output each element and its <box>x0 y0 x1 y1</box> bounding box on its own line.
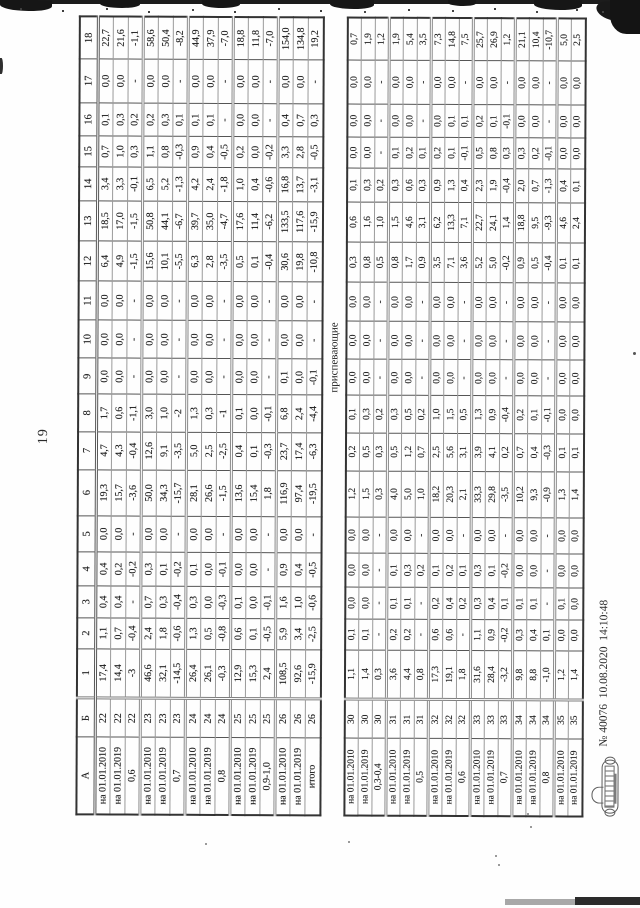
data-cell: - <box>262 321 277 359</box>
data-cell: 0,0 <box>569 518 583 554</box>
data-cell: 0,2 <box>514 396 528 433</box>
data-cell: 0,0 <box>291 517 306 553</box>
column-header-cell: 5 <box>78 516 97 552</box>
data-cell: 3,4 <box>291 619 306 650</box>
data-cell: 0,0 <box>201 586 216 618</box>
data-cell: - <box>374 321 388 359</box>
data-cell: 0,4 <box>248 168 263 202</box>
data-cell: 14,8 <box>445 18 459 60</box>
data-cell: 92,6 <box>290 650 305 699</box>
data-cell: 2,8 <box>293 137 308 168</box>
data-cell: -0,2 <box>500 243 514 283</box>
data-cell: 1,1 <box>344 650 358 699</box>
scan-dot <box>633 352 636 355</box>
data-cell: 0,9 <box>431 168 445 202</box>
data-cell: 3,1 <box>457 433 471 471</box>
data-cell: 0,2 <box>375 168 389 202</box>
data-cell: 23 <box>140 698 155 737</box>
data-cell: 0,5 <box>359 433 373 471</box>
data-cell: 0,7 <box>529 169 543 203</box>
data-cell: 0,0 <box>486 322 500 360</box>
data-cell: 6,2 <box>430 202 444 242</box>
scan-dot <box>205 843 207 845</box>
data-cell: 0,0 <box>471 518 485 554</box>
data-cell: 0,3 <box>156 586 171 618</box>
data-cell: 1,5 <box>359 471 373 517</box>
data-cell: 0,1 <box>246 432 261 470</box>
data-cell: 0,6 <box>231 618 246 649</box>
data-cell: -6,3 <box>306 432 321 470</box>
data-cell: 0,9 <box>276 553 291 587</box>
data-cell: -0,6 <box>306 587 321 619</box>
data-cell: -0,4 <box>501 169 515 203</box>
data-cell: 4,0 <box>387 471 401 517</box>
row-label-cell: 0,9-1,0 <box>260 738 275 815</box>
data-cell: - <box>374 360 388 396</box>
data-cell: 0,0 <box>513 518 527 554</box>
data-cell: 26,4 <box>185 649 200 698</box>
data-cell: 0,5 <box>201 618 216 649</box>
data-cell: - <box>217 321 232 359</box>
data-cell: 134,8 <box>293 17 308 59</box>
data-cell: 26,9 <box>487 18 501 60</box>
data-cell: 0,2 <box>431 137 445 168</box>
data-cell: 1,0 <box>113 136 128 167</box>
data-cell: 0,3 <box>389 168 403 202</box>
data-cell: 0,0 <box>231 516 246 552</box>
data-cell: 0,0 <box>143 59 158 103</box>
data-cell: 46,6 <box>140 649 155 698</box>
data-cell: 1,4 <box>568 651 582 700</box>
data-cell: 0,0 <box>555 554 569 588</box>
data-cell: 0,8 <box>487 138 501 169</box>
data-cell: 0,2 <box>387 619 401 650</box>
data-cell: -0,5 <box>308 137 323 168</box>
data-cell: 0,1 <box>571 169 585 203</box>
data-cell: - <box>262 359 277 395</box>
data-cell: 0,0 <box>141 516 156 552</box>
data-cell: 30 <box>372 699 386 738</box>
data-cell: 0,1 <box>457 553 471 587</box>
data-cell: 17,3 <box>428 650 442 699</box>
data-cell: 50,4 <box>158 17 173 59</box>
data-cell: 3,1 <box>416 202 430 242</box>
data-cell: - <box>375 137 389 168</box>
scan-corner-smudge <box>610 0 640 34</box>
data-cell: -2 <box>172 395 187 432</box>
data-cell: 1,7 <box>402 242 416 282</box>
data-cell: 0,0 <box>360 282 374 321</box>
data-cell: 0,3 <box>202 395 217 432</box>
data-cell: 0,3 <box>373 433 387 471</box>
data-cell: 0,0 <box>444 283 458 322</box>
data-cell: 0,1 <box>417 137 431 168</box>
data-cell: -6,7 <box>172 201 187 241</box>
data-cell: - <box>541 588 555 620</box>
data-cell: 0,7 <box>98 136 113 167</box>
data-cell: 0,0 <box>201 552 216 586</box>
row-label-cell: на 01.01.2019 <box>200 738 215 815</box>
data-cell: 0,4 <box>203 136 218 167</box>
data-cell: 0,0 <box>247 321 262 359</box>
data-cell: 0,0 <box>388 360 402 396</box>
data-cell: 2,8 <box>202 241 217 281</box>
data-cell: - <box>373 517 387 553</box>
data-cell: 44,9 <box>188 17 203 59</box>
data-cell: 0,0 <box>569 554 583 588</box>
data-cell: 0,0 <box>202 321 217 359</box>
data-cell: 0,0 <box>556 396 570 433</box>
data-cell: -0,2 <box>171 552 186 586</box>
data-cell: 1,3 <box>445 168 459 202</box>
data-cell: 0,3 <box>361 168 375 202</box>
data-cell: -3,1 <box>308 168 323 202</box>
data-cell: -1,3 <box>543 169 557 203</box>
data-cell: 0,0 <box>445 60 459 104</box>
data-cell: 0,0 <box>232 282 247 321</box>
data-cell: 0,0 <box>569 588 583 620</box>
data-cell: 0,0 <box>401 517 415 553</box>
data-cell: 1,2 <box>554 651 568 700</box>
data-cell: 32 <box>428 700 442 739</box>
data-cell: 0,0 <box>96 516 111 552</box>
data-cell: 24,1 <box>486 203 500 243</box>
data-cell: -2,5 <box>216 432 231 470</box>
data-cell: 0,0 <box>360 321 374 359</box>
data-cell: 37,9 <box>203 17 218 59</box>
data-cell: 133,5 <box>277 202 292 242</box>
data-cell: 0,0 <box>571 61 585 105</box>
row-label-cell: на 01.01.2010 <box>95 737 110 814</box>
data-cell: -1,1 <box>128 17 143 59</box>
data-cell: 116,9 <box>276 470 291 516</box>
data-cell: 0,4 <box>527 433 541 471</box>
data-cell: 0,0 <box>402 282 416 321</box>
data-cell: 0,2 <box>233 137 248 168</box>
data-cell: 0,1 <box>186 552 201 586</box>
data-cell: - <box>217 359 232 395</box>
data-cell: 0,4 <box>291 553 306 587</box>
data-cell: 0,0 <box>232 321 247 359</box>
data-cell: -10,8 <box>307 242 322 282</box>
data-cell: - <box>458 360 472 396</box>
data-cell: 0,0 <box>248 59 263 103</box>
data-cell: 6,5 <box>143 167 158 201</box>
data-cell: 11,8 <box>248 17 263 59</box>
data-cell: 15,4 <box>246 470 261 516</box>
scan-dot <box>530 826 532 828</box>
row-label-cell: 0,7 <box>170 738 185 815</box>
data-cell: 3,3 <box>113 167 128 201</box>
data-cell: 0,0 <box>277 321 292 359</box>
column-header-cell: 18 <box>80 16 99 58</box>
data-cell: 0,1 <box>487 105 501 138</box>
data-cell: 0,0 <box>389 104 403 137</box>
data-cell: 0,7 <box>141 586 156 618</box>
data-cell: 0,0 <box>359 553 373 587</box>
data-cell: 35 <box>568 700 582 739</box>
reading-page: 19 АБ123456789101112131415161718 на 01.0… <box>0 0 640 908</box>
data-cell: 2,5 <box>201 432 216 470</box>
data-cell: - <box>261 517 276 553</box>
data-cell: 0,0 <box>529 61 543 105</box>
data-cell: 25 <box>245 699 260 738</box>
data-cell: 11,4 <box>247 201 262 241</box>
data-cell: 28,1 <box>186 470 201 516</box>
data-cell: -3,5 <box>171 432 186 470</box>
data-cell: 50,8 <box>142 201 157 241</box>
data-cell: 26 <box>290 699 305 738</box>
data-cell: -0,5 <box>306 553 321 587</box>
data-cell: 0,0 <box>292 359 307 395</box>
data-cell: 0,3 <box>141 552 156 586</box>
data-cell: 0,1 <box>459 105 473 138</box>
data-cell: 0,2 <box>529 138 543 169</box>
data-cell: 30 <box>358 699 372 738</box>
data-cell: 0,3 <box>373 471 387 517</box>
data-cell: - <box>218 104 233 137</box>
data-cell: 20,3 <box>443 471 457 517</box>
data-cell: -1,8 <box>218 167 233 201</box>
data-cell: 0,0 <box>142 281 157 320</box>
data-cell: 1,0 <box>374 202 388 242</box>
data-cell: 0,0 <box>201 516 216 552</box>
data-cell: -0,3 <box>261 432 276 470</box>
data-cell: 23 <box>170 698 185 737</box>
data-cell: 12,6 <box>141 432 156 470</box>
data-cell: - <box>172 321 187 359</box>
data-cell: -0,1 <box>542 396 556 433</box>
scan-dot <box>527 813 529 815</box>
data-cell: 15,7 <box>111 470 126 516</box>
data-cell: 0,0 <box>555 620 569 651</box>
data-cell: - <box>543 61 557 105</box>
data-cell: 3,6 <box>458 243 472 283</box>
data-cell: 0,0 <box>278 60 293 104</box>
data-cell: - <box>543 105 557 138</box>
data-cell: -0,5 <box>218 137 233 168</box>
data-cell: - <box>216 516 231 552</box>
data-cell: -0,1 <box>128 167 143 201</box>
data-cell: - <box>416 322 430 360</box>
data-cell: 0,2 <box>457 587 471 619</box>
row-label-cell: 0,8 <box>540 739 554 816</box>
data-cell: 32,1 <box>155 649 170 698</box>
data-cell: 1,1 <box>96 618 111 649</box>
data-cell: -9,3 <box>542 203 556 243</box>
data-cell: 31,6 <box>470 650 484 699</box>
data-cell: 2,5 <box>429 433 443 471</box>
column-header-cell: 17 <box>80 59 99 103</box>
data-cell: 0,0 <box>97 281 112 320</box>
data-cell: - <box>501 61 515 105</box>
data-cell: 0,2 <box>429 587 443 619</box>
column-header-cell: Б <box>77 698 96 737</box>
data-cell: 7,5 <box>459 18 473 60</box>
data-cell: 3,6 <box>386 650 400 699</box>
data-cell: 0,0 <box>346 282 360 321</box>
data-cell: 18,5 <box>97 201 112 241</box>
data-cell: 26 <box>305 699 320 738</box>
data-cell: 24 <box>200 699 215 738</box>
data-cell: -14,5 <box>170 649 185 698</box>
data-cell: 1,3 <box>186 618 201 649</box>
data-cell: 9,3 <box>527 471 541 517</box>
data-cell: 0,0 <box>246 553 261 587</box>
stamp-icon <box>589 758 621 816</box>
data-cell: -15,9 <box>305 650 320 699</box>
data-cell: 0,3 <box>471 554 485 588</box>
data-cell: 2,0 <box>515 169 529 203</box>
row-label-cell: на 01.01.2010 <box>386 738 400 815</box>
data-cell: 0,0 <box>359 517 373 553</box>
data-cell: - <box>171 516 186 552</box>
data-cell: 0,1 <box>247 242 262 282</box>
data-cell: 6,8 <box>277 395 292 432</box>
data-cell: 0,3 <box>158 103 173 136</box>
data-cell: 34 <box>526 700 540 739</box>
data-cell: - <box>500 283 514 322</box>
data-cell: - <box>457 517 471 553</box>
data-cell: 0,2 <box>473 105 487 138</box>
data-cell: 0,5 <box>232 242 247 282</box>
data-cell: 0,0 <box>444 360 458 396</box>
data-cell: 1,3 <box>555 472 569 518</box>
data-cell: -0,2 <box>263 137 278 168</box>
data-cell: -0,9 <box>541 471 555 517</box>
data-cell: -0,4 <box>542 243 556 283</box>
data-cell: 3,3 <box>278 137 293 168</box>
data-cell: 22,7 <box>472 202 486 242</box>
data-cell: - <box>542 283 556 322</box>
data-cell: 0,0 <box>514 283 528 322</box>
data-cell: 1,0 <box>157 395 172 432</box>
data-cell: -3,2 <box>498 650 512 699</box>
data-cell: 39,7 <box>187 201 202 241</box>
column-header-cell: 8 <box>78 394 97 431</box>
page-number: 19 <box>36 428 52 444</box>
data-cell: 0,4 <box>527 620 541 651</box>
data-cell: 0,2 <box>128 103 143 136</box>
scanned-page: { "page": { "number": "19" }, "table": {… <box>0 0 640 905</box>
data-cell: -1,1 <box>127 395 142 432</box>
data-cell: 0,2 <box>416 396 430 433</box>
data-cell: 0,4 <box>111 586 126 618</box>
data-cell: 0,6 <box>429 619 443 650</box>
data-cell: 0,9 <box>416 242 430 282</box>
data-cell: 1,0 <box>291 587 306 619</box>
data-cell: 0,6 <box>443 619 457 650</box>
data-cell: 0,1 <box>429 553 443 587</box>
data-cell: 9,8 <box>512 650 526 699</box>
data-cell: 22 <box>125 698 140 737</box>
data-cell: -3,6 <box>126 470 141 516</box>
data-cell: 0,0 <box>555 518 569 554</box>
row-label-cell: 0,6 <box>125 737 140 814</box>
row-label-cell: на 01.01.2010 <box>554 739 568 816</box>
data-cell: 0,3 <box>501 138 515 169</box>
row-label-cell: на 01.01.2019 <box>358 738 372 815</box>
data-cell: 0,0 <box>247 359 262 395</box>
scan-bottom-bar-gray <box>505 899 579 905</box>
column-header-cell: 2 <box>77 618 96 649</box>
data-cell: 1,1 <box>143 136 158 167</box>
data-cell: -0,1 <box>543 138 557 169</box>
data-cell: 1,0 <box>415 471 429 517</box>
data-cell: 12,9 <box>230 649 245 698</box>
data-cell: 0,0 <box>233 59 248 103</box>
row-label-cell: на 01.01.2019 <box>290 738 305 815</box>
data-cell: 3,0 <box>142 395 157 432</box>
data-cell: 5,6 <box>443 433 457 471</box>
data-cell: 7,1 <box>458 202 472 242</box>
data-cell: 0,1 <box>513 588 527 620</box>
data-cell: 34 <box>512 700 526 739</box>
data-cell: 0,0 <box>202 282 217 321</box>
data-cell: 0,0 <box>246 517 261 553</box>
data-cell: 1,6 <box>276 587 291 619</box>
data-cell: -0,1 <box>262 395 277 432</box>
data-cell: 0,2 <box>403 137 417 168</box>
data-cell: -1,3 <box>173 167 188 201</box>
data-cell: - <box>262 282 277 321</box>
data-cell: 1,2 <box>375 18 389 60</box>
data-cell: 0,0 <box>277 282 292 321</box>
data-cell: 18,8 <box>514 203 528 243</box>
data-cell: -6,2 <box>262 202 277 242</box>
data-cell: -0,1 <box>307 359 322 395</box>
data-cell: 0,0 <box>345 587 359 619</box>
data-cell: 3,5 <box>430 242 444 282</box>
row-label-cell: на 01.01.2010 <box>344 738 358 815</box>
column-header-cell: 10 <box>78 320 97 358</box>
data-cell: 0,0 <box>388 322 402 360</box>
data-cell: 0,0 <box>429 517 443 553</box>
data-cell: 0,3 <box>360 396 374 433</box>
data-cell: 2,1 <box>457 471 471 517</box>
data-cell: -7,0 <box>218 17 233 59</box>
data-cell: 0,4 <box>278 104 293 137</box>
data-cell: - <box>308 60 323 104</box>
data-cell: 0,0 <box>556 360 570 396</box>
data-table-block1: АБ123456789101112131415161718 на 01.01.2… <box>75 15 324 816</box>
row-label-cell: на 01.01.2019 <box>442 739 456 816</box>
row-label-cell: на 01.01.2010 <box>275 738 290 815</box>
data-cell: 0,0 <box>514 360 528 396</box>
data-cell: 0,0 <box>157 281 172 320</box>
row-label-cell: на 01.01.2010 <box>230 738 245 815</box>
data-cell: -19,5 <box>306 470 321 516</box>
data-cell: 0,1 <box>173 103 188 136</box>
data-cell: 0,0 <box>112 320 127 358</box>
data-cell: - <box>416 283 430 322</box>
data-cell: 0,0 <box>472 283 486 322</box>
data-cell: - <box>307 282 322 321</box>
data-cell: - <box>373 619 387 650</box>
data-cell: 2,4 <box>292 395 307 432</box>
data-cell: 0,4 <box>485 588 499 620</box>
data-cell: -3,5 <box>499 471 513 517</box>
data-cell: 0,2 <box>111 552 126 586</box>
data-cell: 0,2 <box>143 103 158 136</box>
data-cell: 0,0 <box>570 283 584 322</box>
data-cell: 4,9 <box>112 241 127 281</box>
data-cell: - <box>373 553 387 587</box>
data-cell: 2,4 <box>141 618 156 649</box>
data-cell: 24 <box>185 698 200 737</box>
data-cell: 0,0 <box>387 517 401 553</box>
data-cell: 0,0 <box>431 104 445 137</box>
